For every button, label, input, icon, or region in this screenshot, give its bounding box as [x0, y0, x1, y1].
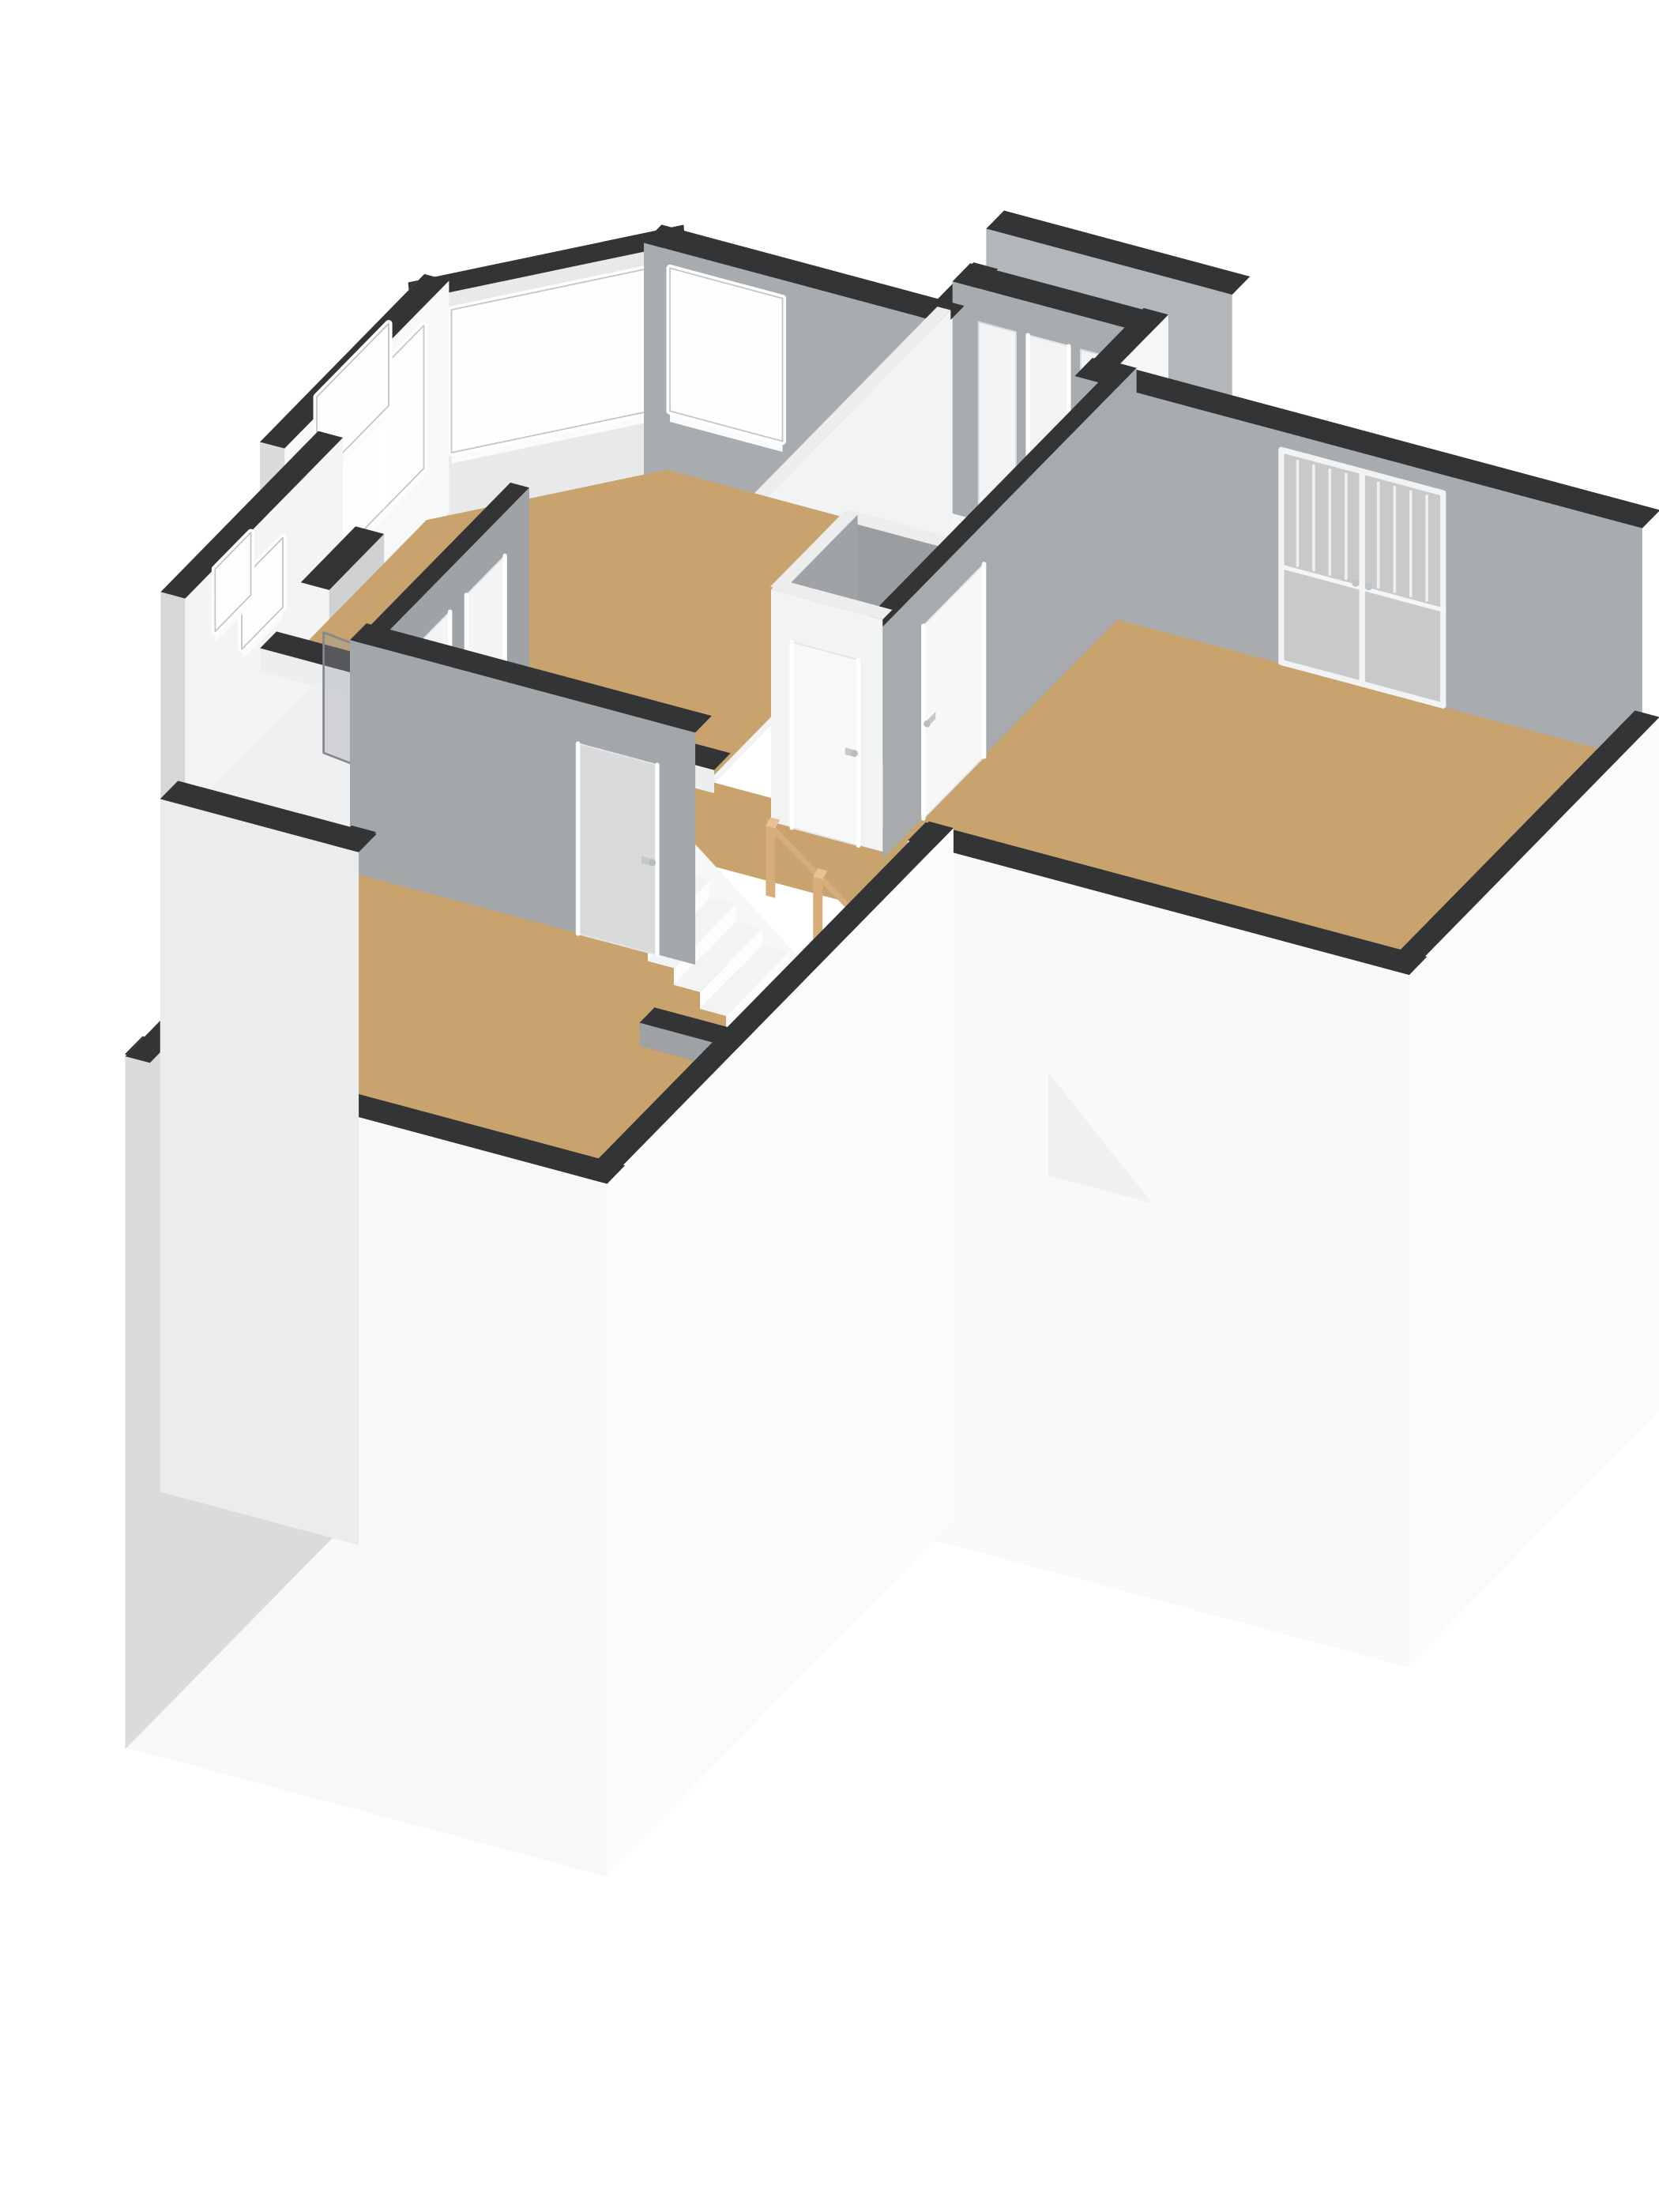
toilet-south-wall-door [792, 642, 858, 846]
stair-newel-post [766, 826, 775, 897]
door-handle-icon [851, 750, 858, 757]
right-room-south-wall-face-pos [908, 841, 1409, 1668]
floorplan-stage [0, 0, 1659, 2212]
floorplan-3d-render [0, 0, 1659, 2212]
right-room-north-wall-french-leaf [1362, 472, 1443, 706]
door-handle-icon [924, 720, 931, 728]
french-door-handle-icon [1365, 583, 1372, 590]
annex-south-wall-face-pos [160, 799, 359, 1544]
landing-south-wall-door [578, 743, 657, 955]
right-room-north-wall-french-leaf [1281, 450, 1362, 683]
french-door-handle-icon [1352, 579, 1359, 586]
door-handle-icon [649, 860, 656, 867]
